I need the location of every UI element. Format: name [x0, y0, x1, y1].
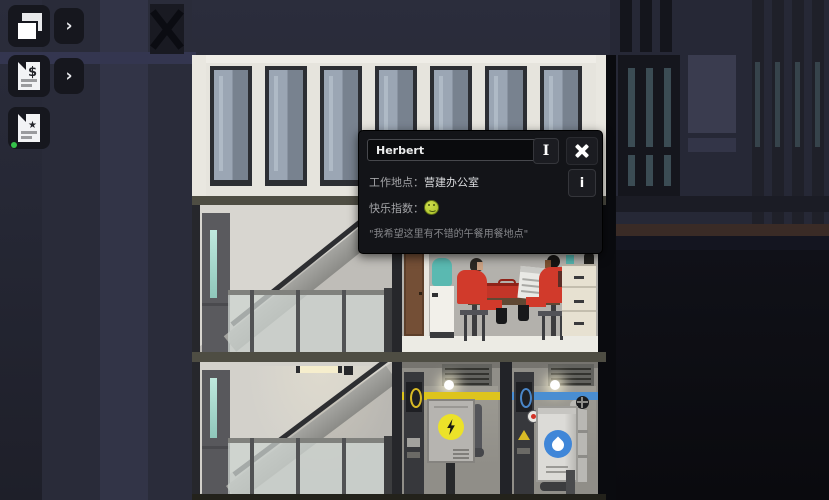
- wood-door: [404, 250, 424, 336]
- door-slit-window: [210, 230, 217, 298]
- stool-leg: [482, 315, 485, 341]
- worker-legs: [526, 297, 546, 307]
- doc-line: [21, 79, 37, 82]
- balustrade-post: [296, 290, 300, 352]
- pipe-band: [610, 224, 829, 236]
- balustrade-post: [250, 290, 254, 352]
- heater-vent: [546, 466, 568, 468]
- background-facade-left-stripe: [100, 0, 148, 500]
- balustrade-post: [342, 290, 346, 352]
- water-cooler-tap: [432, 293, 438, 297]
- drawer-line: [562, 286, 596, 288]
- water-cooler-base: [430, 332, 454, 338]
- doc-line: [21, 136, 32, 139]
- rename-button[interactable]: I: [533, 138, 559, 164]
- page-fold: [18, 62, 26, 70]
- facade-window: [688, 55, 736, 133]
- door-slit-window: [210, 378, 217, 438]
- newel-post: [384, 436, 392, 500]
- window-glint: [219, 76, 223, 171]
- layers-front-page: [16, 21, 38, 41]
- panel-vent: [453, 457, 469, 459]
- balustrade-post: [250, 438, 254, 500]
- chevron-right-icon: ›: [65, 66, 72, 86]
- facade-post: [640, 0, 652, 52]
- layers-expand-chevron[interactable]: ›: [54, 8, 84, 44]
- work-location-value: 营建办公室: [424, 176, 479, 189]
- page-fold: [18, 114, 26, 122]
- worker-tooltip: I 工作地点：营建办公室 i 快乐指数： "我希望这里有不错的午餐用餐地点": [358, 130, 603, 254]
- signage-plate: [517, 448, 530, 454]
- office-window: [320, 66, 362, 186]
- happiness-row: 快乐指数：: [369, 197, 439, 216]
- worker-name-input[interactable]: [367, 139, 541, 161]
- happy-face-icon: [424, 200, 439, 215]
- worker-quote: "我希望这里有不错的午餐用餐地点": [369, 225, 594, 240]
- layers-panel-button[interactable]: [8, 5, 50, 47]
- stool-leg: [542, 316, 545, 340]
- entry-pillar: [514, 372, 534, 500]
- doc-line: [21, 84, 32, 87]
- stool-leg: [464, 315, 467, 341]
- balustrade-post: [342, 438, 346, 500]
- electric-oval-emblem: [410, 388, 422, 408]
- room-stairwell-lower[interactable]: [192, 362, 392, 500]
- worker-torso: [457, 270, 487, 304]
- text-cursor-icon: I: [543, 143, 550, 159]
- electric-badge: [438, 414, 464, 440]
- heater-vent: [546, 471, 568, 473]
- electrical-panel: [427, 399, 475, 463]
- slit-window: [755, 62, 760, 147]
- signage-plate: [407, 452, 420, 458]
- facade-post: [660, 0, 672, 52]
- ceiling-box: [344, 366, 353, 375]
- warning-triangle-icon: [518, 430, 530, 440]
- slit-window: [664, 68, 671, 186]
- slit-window: [775, 62, 780, 147]
- worker-face: [477, 262, 483, 270]
- lamp-bulb: [444, 380, 454, 390]
- drawer-handle: [574, 300, 584, 303]
- finance-expand-chevron[interactable]: ›: [54, 58, 84, 94]
- window-glint: [329, 76, 333, 171]
- info-button[interactable]: i: [568, 169, 596, 197]
- close-icon: [574, 143, 590, 159]
- door-seam: [202, 303, 230, 306]
- water-badge: [544, 430, 572, 458]
- background-facade-left-stripe: [148, 0, 192, 500]
- newel-post: [384, 288, 392, 352]
- drawer-line: [562, 310, 596, 312]
- layers-icon: [8, 5, 50, 47]
- worker-herbert[interactable]: [452, 253, 512, 352]
- water-oval-emblem: [520, 388, 532, 408]
- facade-column-slit-windows: [618, 55, 680, 200]
- signage-plate: [407, 438, 420, 447]
- room-electrical-utility[interactable]: [402, 362, 500, 500]
- lamp-bulb: [550, 380, 560, 390]
- building-base-strip: [192, 494, 606, 500]
- door-seam: [202, 446, 230, 449]
- finance-document-icon: $: [18, 62, 40, 90]
- notification-dot: [11, 142, 17, 148]
- valve-spoke: [581, 397, 583, 408]
- door-knob: [419, 292, 422, 295]
- room-divider-column: [392, 362, 402, 500]
- work-location-row: 工作地点：营建办公室: [369, 171, 479, 190]
- wall-edge: [192, 205, 200, 352]
- game-viewport: › $ › ★ I 工作地点：营建办公室: [0, 0, 829, 500]
- worker-boot: [518, 305, 529, 321]
- drawer-handle: [574, 322, 584, 325]
- facade-ledge: [610, 196, 829, 212]
- ceiling-lamp: [296, 366, 342, 373]
- slit-window: [628, 68, 635, 186]
- finance-report-button[interactable]: $: [8, 55, 50, 97]
- service-door: [202, 370, 230, 500]
- panel-line: [434, 406, 468, 408]
- newsprint-line: [522, 284, 540, 288]
- close-button[interactable]: [566, 137, 598, 165]
- drawer-handle: [574, 276, 584, 279]
- chevron-right-icon: ›: [65, 16, 72, 36]
- dollar-glyph: $: [28, 66, 37, 79]
- water-cooler-bottle: [432, 258, 452, 286]
- lightning-bolt-icon: [445, 419, 457, 435]
- balustrade-post: [296, 438, 300, 500]
- teal-mug: [566, 255, 574, 264]
- info-icon: i: [580, 176, 584, 191]
- droplet-icon: [550, 437, 567, 454]
- panel-vent: [453, 449, 469, 451]
- underground-dark: [598, 250, 829, 500]
- slit-window: [646, 68, 653, 186]
- slit-window: [795, 62, 800, 147]
- filing-cabinet: [562, 264, 596, 336]
- building-top-frame: [192, 55, 606, 63]
- panel-vent: [453, 453, 469, 455]
- newsprint-line: [521, 290, 539, 294]
- room-water-utility[interactable]: [512, 362, 598, 500]
- office-window: [265, 66, 307, 186]
- service-door: [202, 213, 230, 352]
- building-left-pilaster: [192, 55, 206, 196]
- room-divider-column: [500, 362, 512, 500]
- entry-pillar: [404, 372, 424, 500]
- work-location-label: 工作地点：: [369, 176, 424, 189]
- slit-divider: [618, 147, 680, 155]
- heater-cap: [538, 408, 576, 414]
- newsprint-line: [522, 278, 540, 282]
- happiness-label: 快乐指数：: [369, 202, 424, 215]
- wall-edge: [192, 362, 200, 500]
- facade-window-lower: [688, 138, 736, 152]
- facade-post: [620, 0, 632, 52]
- worker-boot: [496, 308, 507, 324]
- standpipe: [577, 410, 587, 482]
- office-window: [210, 66, 252, 186]
- floor-divider: [192, 352, 606, 362]
- door-jamb: [424, 250, 429, 336]
- goals-report-button[interactable]: ★: [8, 107, 50, 149]
- doc-line: [21, 131, 37, 134]
- window-glint: [274, 76, 278, 171]
- facade-x-ornament: [150, 4, 184, 54]
- starred-document-icon: ★: [18, 114, 40, 142]
- slit-window: [815, 62, 820, 147]
